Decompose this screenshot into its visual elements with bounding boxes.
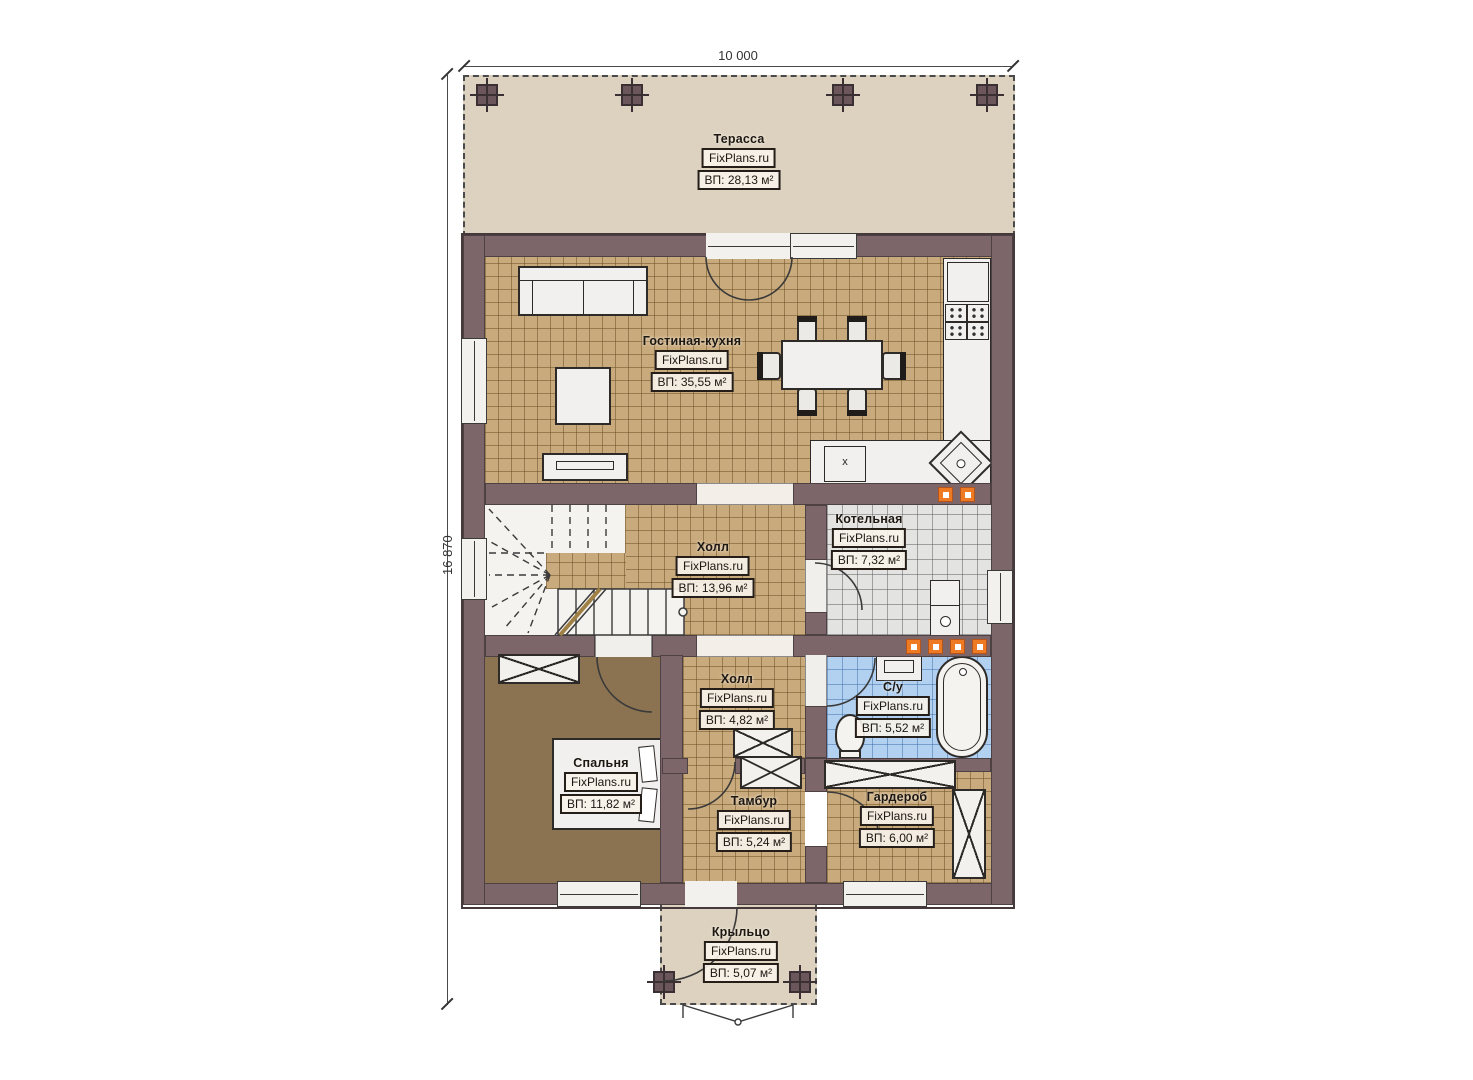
brand-stamp: FixPlans.ru — [702, 148, 776, 168]
wall-segment — [805, 846, 827, 883]
closet — [733, 728, 793, 758]
wall-segment — [805, 612, 827, 635]
brand-stamp: FixPlans.ru — [856, 696, 930, 716]
area-value: ВП: 5,07 м² — [703, 963, 779, 983]
dimension-height-label: 16 870 — [440, 535, 455, 575]
brand-stamp: FixPlans.ru — [832, 528, 906, 548]
floor-stair-landing — [546, 553, 626, 589]
vent-marker — [950, 639, 965, 654]
window — [461, 538, 487, 600]
room-label-wardrobe: Гардероб FixPlans.ru ВП: 6,00 м² — [859, 790, 935, 848]
wall-segment — [662, 758, 688, 774]
window — [461, 338, 487, 424]
vent-marker — [938, 487, 953, 502]
opening — [697, 483, 793, 505]
bathroom-sink — [876, 654, 922, 681]
column-post — [789, 971, 811, 993]
sofa — [518, 266, 648, 316]
area-value: ВП: 35,55 м² — [651, 372, 734, 392]
room-name: Холл — [697, 540, 729, 554]
room-name: С/у — [883, 680, 903, 694]
door-opening-bathroom — [805, 655, 827, 706]
window — [557, 881, 641, 907]
window — [843, 881, 927, 907]
cooktop-x-marker: x — [824, 456, 866, 468]
dimension-width-label: 10 000 — [718, 48, 758, 63]
stove — [945, 304, 989, 338]
room-label-terrace: Терасса FixPlans.ru ВП: 28,13 м² — [698, 132, 781, 190]
area-value: ВП: 28,13 м² — [698, 170, 781, 190]
area-value: ВП: 5,24 м² — [716, 832, 792, 852]
room-name: Котельная — [835, 512, 902, 526]
door-opening-bedroom — [595, 635, 652, 657]
brand-stamp: FixPlans.ru — [860, 806, 934, 826]
vent-marker — [960, 487, 975, 502]
room-name: Терасса — [714, 132, 765, 146]
room-name: Тамбур — [731, 794, 778, 808]
porch-steps — [683, 1005, 793, 1025]
chair — [757, 352, 781, 380]
brand-stamp: FixPlans.ru — [676, 556, 750, 576]
room-name: Крыльцо — [712, 925, 770, 939]
opening — [697, 635, 793, 657]
window — [987, 570, 1013, 624]
boiler-unit — [930, 580, 960, 636]
area-value: ВП: 5,52 м² — [855, 718, 931, 738]
column-post — [832, 84, 854, 106]
area-value: ВП: 4,82 м² — [699, 710, 775, 730]
wall-segment — [805, 706, 827, 758]
column-post — [476, 84, 498, 106]
room-label-bedroom: Спальня FixPlans.ru ВП: 11,82 м² — [560, 756, 642, 814]
brand-stamp: FixPlans.ru — [700, 688, 774, 708]
bathtub — [936, 656, 988, 758]
room-label-living-kitchen: Гостиная-кухня FixPlans.ru ВП: 35,55 м² — [643, 334, 742, 392]
chair — [847, 388, 867, 416]
brand-stamp: FixPlans.ru — [704, 941, 778, 961]
chair — [797, 388, 817, 416]
fridge — [947, 262, 989, 302]
column-post — [976, 84, 998, 106]
room-name: Спальня — [573, 756, 628, 770]
wall-segment — [652, 635, 697, 657]
terrace-door-opening — [706, 233, 792, 259]
room-name: Гостиная-кухня — [643, 334, 742, 348]
room-name: Гардероб — [867, 790, 928, 804]
room-label-bathroom: С/у FixPlans.ru ВП: 5,52 м² — [855, 680, 931, 738]
dimension-line-top — [463, 66, 1013, 67]
room-label-hall-2: Холл FixPlans.ru ВП: 4,82 м² — [699, 672, 775, 730]
floor-plan-canvas: 10 000 16 870 — [0, 0, 1473, 1080]
wall-bottom — [463, 883, 1013, 905]
chair — [882, 352, 906, 380]
entry-door-opening — [685, 881, 737, 907]
brand-stamp: FixPlans.ru — [655, 350, 729, 370]
brand-stamp: FixPlans.ru — [564, 772, 638, 792]
area-value: ВП: 13,96 м² — [672, 578, 755, 598]
tv-stand — [542, 453, 628, 481]
room-label-porch: Крыльцо FixPlans.ru ВП: 5,07 м² — [703, 925, 779, 983]
closet — [952, 789, 986, 879]
room-label-hall-1: Холл FixPlans.ru ВП: 13,96 м² — [672, 540, 755, 598]
room-label-vestibule: Тамбур FixPlans.ru ВП: 5,24 м² — [716, 794, 792, 852]
coffee-table — [555, 367, 611, 425]
room-name: Холл — [721, 672, 753, 686]
vent-marker — [928, 639, 943, 654]
column-post — [653, 971, 675, 993]
vent-marker — [906, 639, 921, 654]
room-label-boiler: Котельная FixPlans.ru ВП: 7,32 м² — [831, 512, 907, 570]
brand-stamp: FixPlans.ru — [717, 810, 791, 830]
column-post — [621, 84, 643, 106]
closet — [498, 654, 580, 684]
area-value: ВП: 11,82 м² — [560, 794, 642, 814]
door-opening-boiler — [805, 560, 827, 612]
closet — [740, 756, 802, 789]
wall-segment — [485, 483, 697, 505]
area-value: ВП: 7,32 м² — [831, 550, 907, 570]
dining-table — [781, 340, 883, 390]
vent-marker — [972, 639, 987, 654]
closet — [824, 760, 956, 789]
area-value: ВП: 6,00 м² — [859, 828, 935, 848]
wall-segment — [805, 505, 827, 560]
window — [790, 233, 857, 259]
